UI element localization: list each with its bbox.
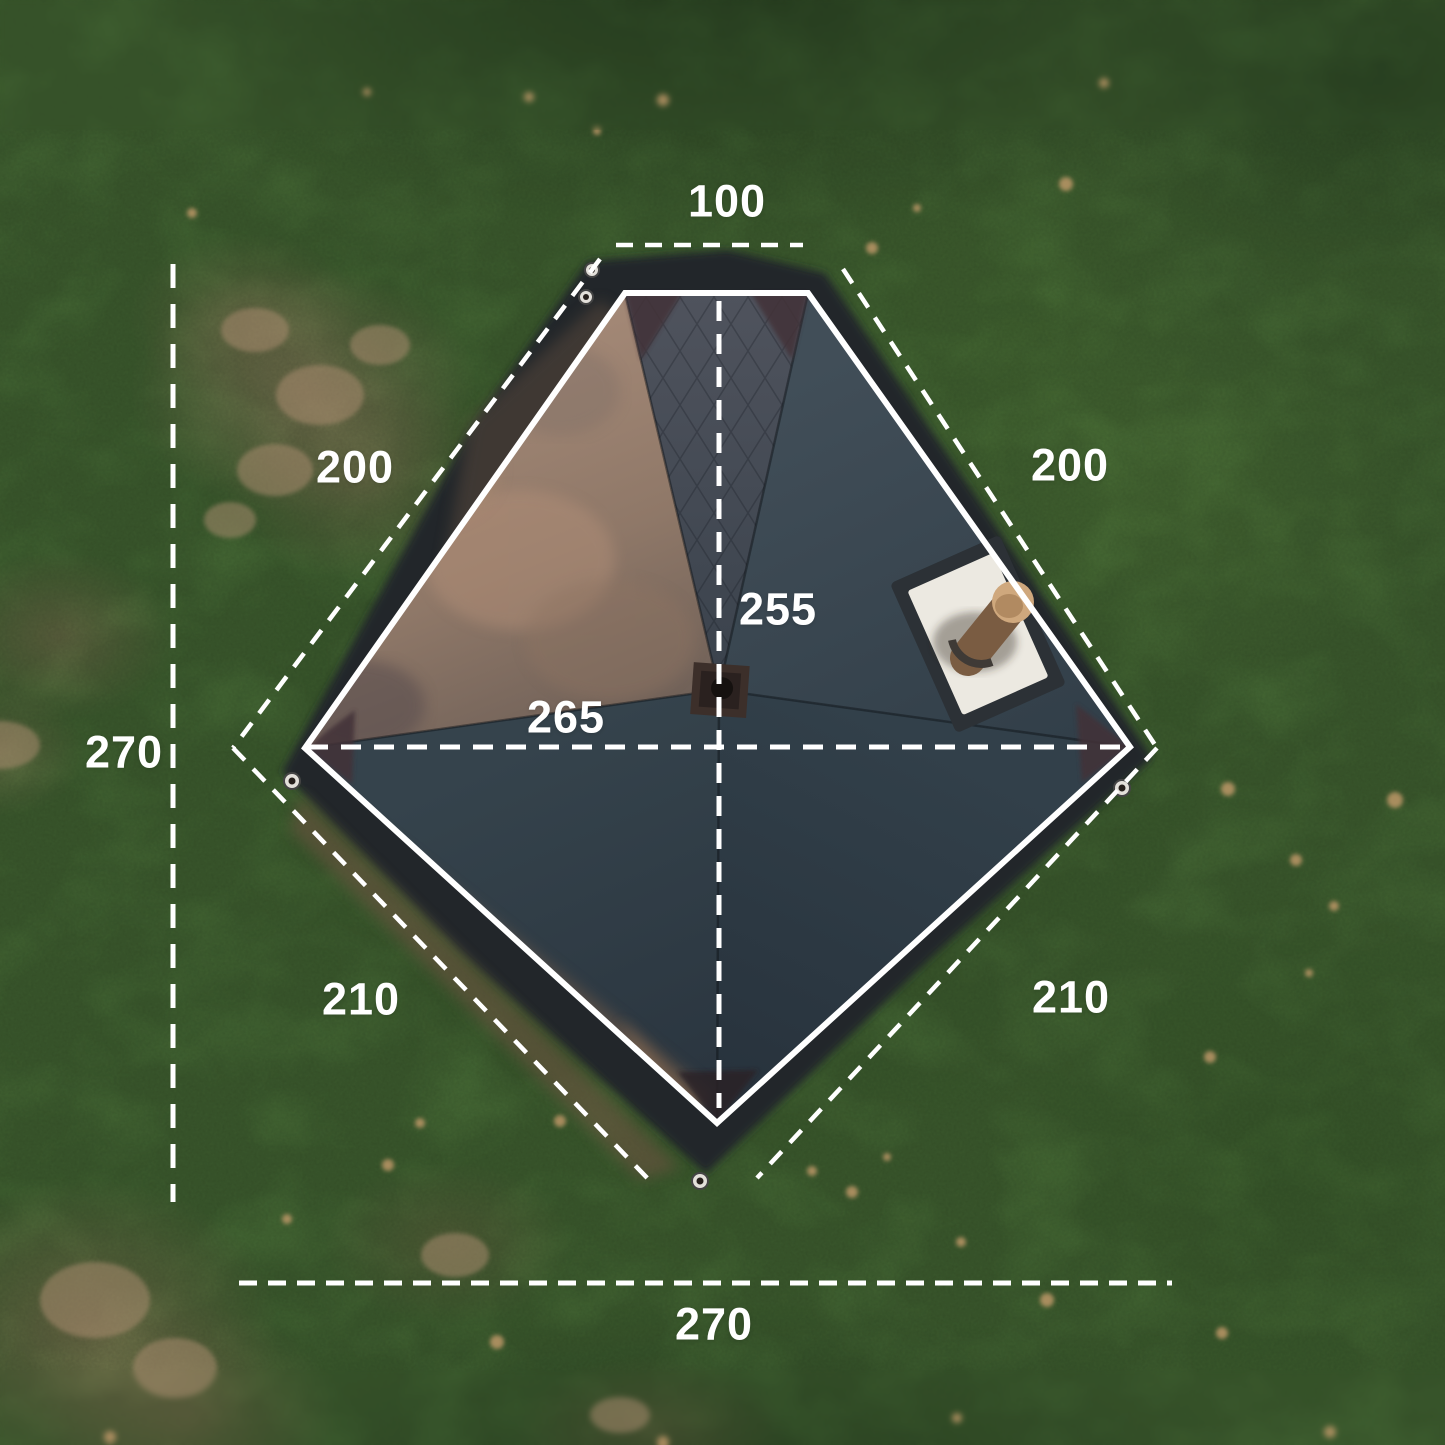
dim-label-lower-right-edge: 210: [1032, 975, 1110, 1020]
tent-dimension-diagram: 100 200 200 255 265 270 210 210 270: [0, 0, 1445, 1445]
dim-label-top-width: 100: [688, 179, 766, 224]
dim-label-inner-vertical: 255: [739, 587, 817, 632]
dim-label-upper-right-edge: 200: [1031, 443, 1109, 488]
dim-label-inner-horizontal: 265: [527, 695, 605, 740]
chimney-pipe-opening: [995, 594, 1023, 618]
dim-label-bottom-width: 270: [675, 1302, 753, 1347]
dim-label-upper-left-edge: 200: [316, 445, 394, 490]
dim-label-left-height: 270: [85, 730, 163, 775]
dim-label-lower-left-edge: 210: [322, 977, 400, 1022]
